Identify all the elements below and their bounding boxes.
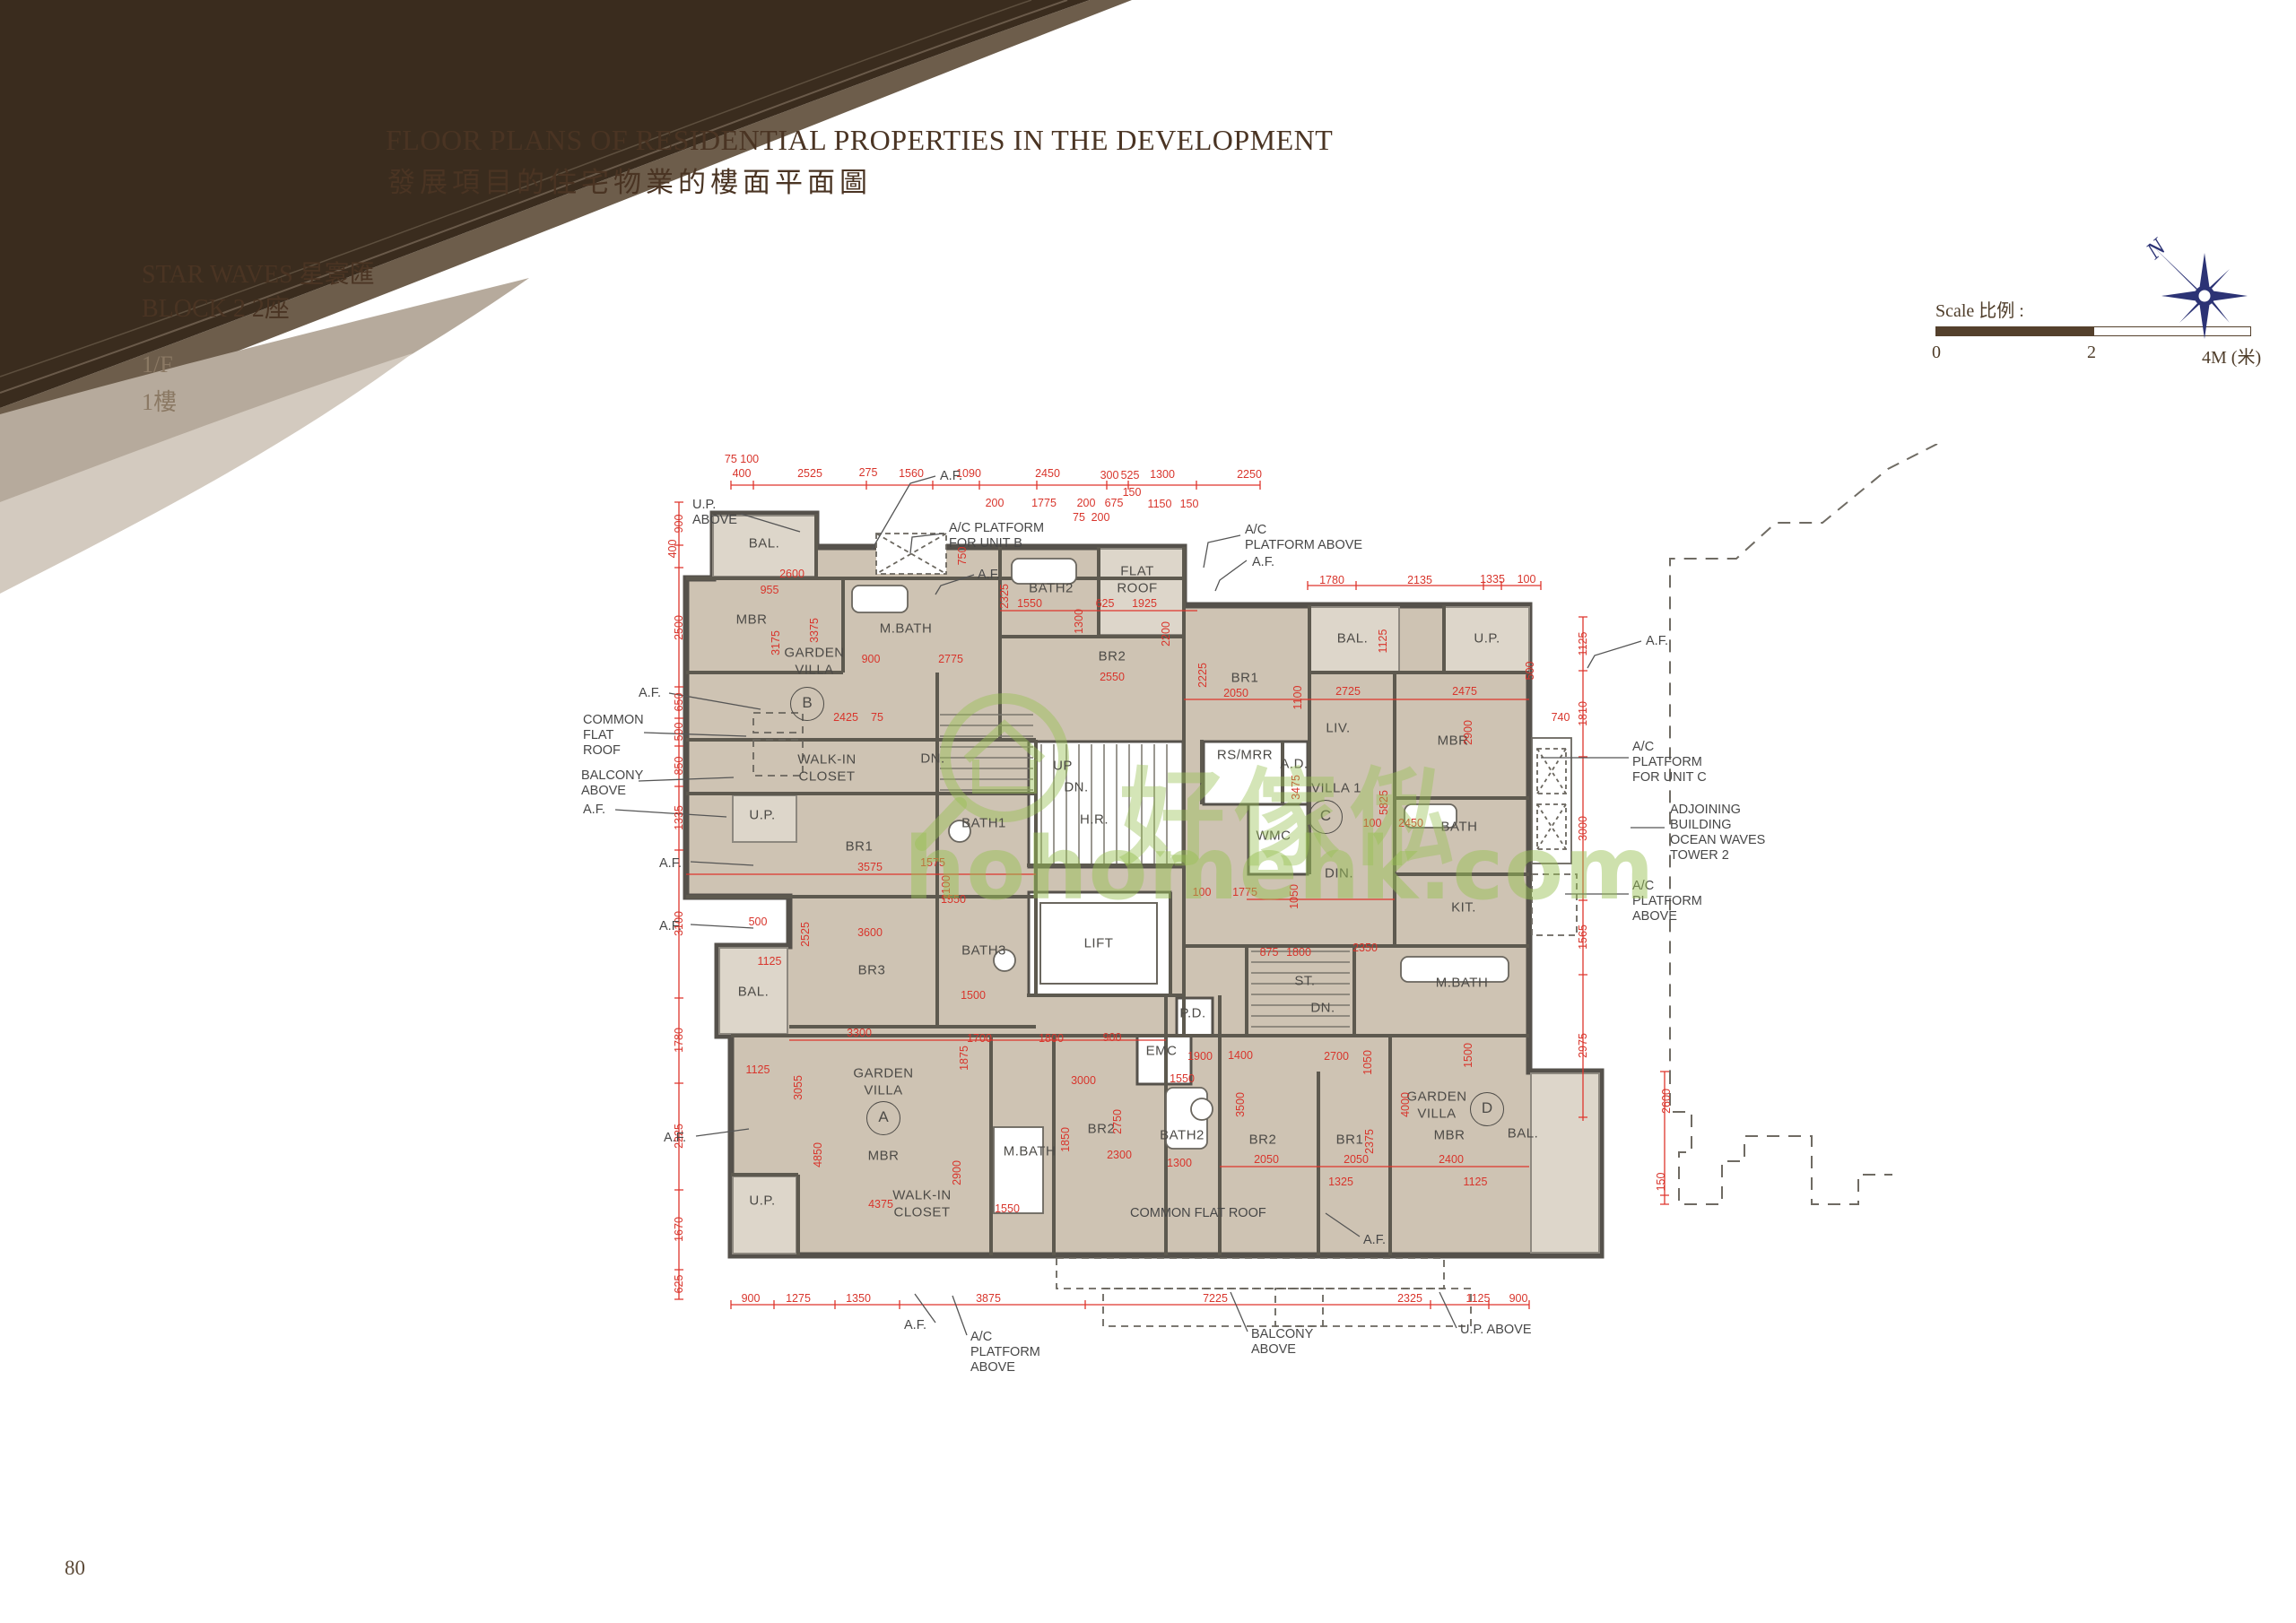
dimension-label: 1400 — [1228, 1049, 1253, 1062]
dimension-label: 200 — [1091, 511, 1110, 524]
room-label: BR1 — [1336, 1133, 1364, 1150]
annotation-callout: BALCONY ABOVE — [581, 768, 643, 799]
room-label: BR1 — [846, 839, 874, 856]
annotation-callout: A.F. — [978, 568, 1000, 583]
dimension-label: 3175 — [770, 630, 782, 655]
plan-labels-layer: BAL.MBRGARDEN VILLAM.BATHBATH2FLAT ROOFB… — [538, 444, 1955, 1408]
dimension-label: 2375 — [1363, 1129, 1376, 1154]
dimension-label: 1125 — [746, 1063, 770, 1076]
dimension-label: 1775 — [1232, 886, 1257, 898]
dimension-label: 500 — [749, 916, 768, 928]
annotation-callout: A.F. — [659, 919, 682, 934]
dimension-label: 675 — [1105, 497, 1124, 509]
annotation-callout: A.F. — [1252, 555, 1274, 570]
dimension-label: 5825 — [1378, 790, 1390, 815]
room-label: U.P. — [1474, 631, 1500, 648]
dimension-label: 2350 — [1352, 942, 1378, 954]
annotation-callout: A.F. — [659, 856, 682, 872]
dimension-label: 3375 — [808, 618, 821, 643]
room-label: BAL. — [1337, 631, 1369, 648]
dimension-label: 2300 — [1107, 1149, 1132, 1161]
dimension-label: 2050 — [1254, 1153, 1279, 1166]
room-label: WMC — [1257, 829, 1291, 846]
dimension-label: 200 — [986, 497, 1004, 509]
dimension-label: 1125 — [1377, 629, 1389, 654]
dimension-label: 1875 — [958, 1046, 970, 1071]
dimension-label: 4000 — [1399, 1092, 1412, 1117]
dimension-label: 2725 — [1335, 685, 1361, 698]
room-label: WALK-IN CLOSET — [797, 751, 856, 785]
room-label: DN. — [1064, 780, 1088, 797]
dimension-label: 400 — [733, 467, 752, 480]
room-label: BATH — [1441, 820, 1478, 837]
room-label: VILLA 1 — [1311, 781, 1361, 798]
annotation-callout: A/C PLATFORM ABOVE — [970, 1330, 1040, 1376]
floor-label-zh: 1樓 — [142, 384, 177, 417]
dimension-label: 650 — [673, 693, 685, 712]
dimension-label: 1050 — [1361, 1050, 1374, 1075]
dimension-label: 2900 — [951, 1160, 963, 1185]
dimension-label: 2325 — [998, 584, 1011, 609]
floor-plan: BAL.MBRGARDEN VILLAM.BATHBATH2FLAT ROOFB… — [538, 444, 1955, 1408]
dimension-label: 2600 — [1660, 1089, 1673, 1114]
dimension-label: 2425 — [833, 711, 858, 724]
room-label: MBR — [736, 612, 768, 629]
dimension-label: 850 — [673, 757, 685, 776]
room-label: BR1 — [1231, 671, 1259, 688]
dimension-label: 3475 — [1290, 775, 1302, 800]
dimension-label: 1125 — [1464, 1176, 1488, 1188]
dimension-label: 2050 — [1223, 687, 1248, 699]
dimension-label: 4375 — [868, 1198, 893, 1211]
room-label: ST. — [1294, 974, 1315, 991]
dimension-label: 1670 — [673, 1217, 685, 1242]
dimension-label: 1550 — [1170, 1072, 1195, 1085]
dimension-label: 3500 — [1234, 1092, 1247, 1117]
room-label: KIT. — [1451, 900, 1476, 917]
unit-circle-label: D — [1470, 1092, 1504, 1126]
dimension-label: 1575 — [920, 856, 945, 869]
annotation-callout: A.F. — [639, 686, 661, 701]
dimension-label: 1100 — [1291, 686, 1304, 710]
dimension-label: 200 — [1077, 497, 1096, 509]
room-label: LIV. — [1326, 721, 1350, 738]
dimension-label: 1700 — [967, 1032, 992, 1045]
dimension-label: 1125 — [758, 955, 782, 968]
annotation-callout: A/C PLATFORM FOR UNIT C — [1632, 740, 1707, 785]
dimension-label: 100 — [1363, 817, 1382, 829]
room-label: H.R. — [1080, 812, 1109, 829]
dimension-label: 4850 — [812, 1142, 824, 1167]
dimension-label: 625 — [673, 1275, 685, 1294]
dimension-label: 1125 — [1466, 1292, 1491, 1305]
annotation-callout: A.F. — [940, 469, 962, 484]
dimension-label: 1050 — [1288, 884, 1300, 909]
annotation-callout: A/C PLATFORM ABOVE — [1245, 523, 1362, 553]
dimension-label: 525 — [1121, 469, 1140, 482]
room-label: BR3 — [858, 963, 886, 980]
room-label: BAL. — [749, 536, 780, 553]
dimension-label: 1150 — [1148, 498, 1172, 510]
dimension-label: 1500 — [961, 989, 986, 1002]
dimension-label: 3875 — [976, 1292, 1001, 1305]
dimension-label: 2325 — [1397, 1292, 1422, 1305]
dimension-label: 150 — [1123, 486, 1142, 499]
annotation-callout: BALCONY ABOVE — [1251, 1327, 1313, 1358]
scale-tick-2: 2 — [2087, 343, 2096, 363]
dimension-label: 2135 — [1407, 574, 1432, 586]
annotation-callout: U.P. ABOVE — [692, 498, 737, 528]
dimension-label: 75 100 — [725, 453, 759, 465]
dimension-label: 2775 — [938, 653, 963, 665]
dimension-label: 1560 — [899, 467, 924, 480]
dimension-label: 3600 — [857, 926, 883, 939]
dimension-label: 1925 — [1132, 597, 1157, 610]
room-label: RS/MRR — [1217, 748, 1273, 765]
dimension-label: 2450 — [1035, 467, 1060, 480]
dimension-label: 1300 — [1073, 609, 1085, 634]
dimension-label: 1780 — [1319, 574, 1344, 586]
room-label: BR2 — [1099, 649, 1126, 666]
room-label: UP — [1053, 759, 1073, 776]
dimension-label: 955 — [761, 584, 779, 596]
unit-circle-label: C — [1309, 800, 1343, 834]
dimension-label: 1550 — [941, 893, 966, 906]
dimension-label: 1550 — [995, 1202, 1020, 1215]
dimension-label: 150 — [1655, 1173, 1667, 1192]
dimension-label: 500 — [1524, 662, 1536, 681]
dimension-label: 3000 — [1071, 1074, 1096, 1087]
scale-tick-0: 0 — [1932, 343, 1941, 363]
dimension-label: 2750 — [1111, 1109, 1124, 1134]
annotation-callout: A/C PLATFORM FOR UNIT B — [949, 521, 1044, 551]
dimension-label: 1335 — [1480, 573, 1505, 586]
dimension-label: 625 — [1096, 597, 1115, 610]
room-label: M.BATH — [1436, 976, 1489, 993]
dimension-label: 2700 — [1324, 1050, 1349, 1063]
room-label: M.BATH — [880, 621, 933, 638]
annotation-callout: U.P. ABOVE — [1460, 1323, 1532, 1338]
room-label: FLAT ROOF — [1117, 563, 1157, 597]
dimension-label: 300 — [1100, 469, 1119, 482]
annotation-callout: A.F. — [583, 803, 605, 818]
page-number: 80 — [65, 1557, 85, 1580]
dimension-label: 2450 — [1398, 817, 1423, 829]
room-label: A.D. — [1280, 757, 1308, 774]
dimension-label: 2050 — [1344, 1153, 1369, 1166]
room-label: BATH1 — [961, 816, 1006, 833]
floor-label-en: 1/F — [142, 352, 173, 378]
annotation-callout: A.F. — [664, 1131, 686, 1146]
unit-circle-label: A — [866, 1101, 900, 1135]
dimension-label: 100 — [1193, 886, 1212, 898]
dimension-label: 590 — [673, 723, 685, 742]
dimension-label: 1300 — [1150, 468, 1175, 481]
dimension-label: 1500 — [1462, 1043, 1474, 1068]
dimension-label: 2225 — [1196, 663, 1209, 688]
dimension-label: 1780 — [673, 1028, 685, 1053]
dimension-label: 1300 — [1167, 1157, 1192, 1169]
page-title-zh: 發展項目的住宅物業的樓面平面圖 — [387, 160, 872, 200]
dimension-label: 900 — [862, 653, 881, 665]
dimension-label: 2475 — [1452, 685, 1477, 698]
dimension-label: 3575 — [857, 861, 883, 873]
annotation-callout: COMMON FLAT ROOF — [1130, 1206, 1266, 1221]
room-label: GARDEN VILLA — [853, 1065, 913, 1099]
dimension-label: 2900 — [1462, 720, 1474, 745]
room-label: WALK-IN CLOSET — [892, 1187, 951, 1221]
dimension-label: 1565 — [1577, 924, 1589, 950]
room-label: EMC — [1146, 1044, 1178, 1061]
room-label: GARDEN VILLA — [784, 645, 844, 679]
dimension-label: 2975 — [1577, 1033, 1589, 1058]
dimension-label: 2525 — [797, 467, 822, 480]
room-label: BATH3 — [961, 943, 1006, 960]
dimension-label: 1335 — [673, 805, 685, 830]
room-label: BR2 — [1249, 1133, 1277, 1150]
dimension-label: 3055 — [792, 1075, 804, 1100]
dimension-label: 900 — [1509, 1292, 1528, 1305]
dimension-label: 1810 — [1577, 701, 1589, 726]
room-label: M.BATH — [1004, 1144, 1057, 1161]
dimension-label: 1800 — [1286, 946, 1311, 959]
dimension-label: 1775 — [1031, 497, 1057, 509]
scale-bar-filled — [1935, 326, 2095, 336]
annotation-callout: A.F. — [904, 1318, 926, 1333]
dimension-label: 900 — [742, 1292, 761, 1305]
dimension-label: 2500 — [673, 615, 685, 640]
dimension-label: 75 — [1073, 511, 1085, 524]
room-label: P.D. — [1179, 1006, 1205, 1023]
dimension-label: 1275 — [786, 1292, 811, 1305]
dimension-label: 2400 — [1439, 1153, 1464, 1166]
dimension-label: 3300 — [847, 1027, 872, 1039]
dimension-label: 1125 — [1577, 632, 1589, 656]
annotation-callout: COMMON FLAT ROOF — [583, 713, 644, 759]
dimension-label: 1800 — [1039, 1032, 1064, 1045]
room-label: DN. — [1310, 1001, 1335, 1018]
room-label: BATH2 — [1029, 581, 1074, 598]
room-label: MBR — [868, 1149, 900, 1166]
room-label: DN. — [920, 751, 944, 768]
room-label: U.P. — [749, 808, 775, 825]
annotation-callout: ADJOINING BUILDING OCEAN WAVES TOWER 2 — [1670, 803, 1765, 864]
dimension-label: 100 — [1518, 573, 1536, 586]
dimension-label: 1850 — [1059, 1127, 1072, 1152]
room-label: DIN. — [1325, 866, 1353, 883]
dimension-label: 3000 — [1577, 816, 1589, 841]
project-name: STAR WAVES 星寰匯 — [142, 255, 375, 291]
dimension-label: 2200 — [1160, 621, 1172, 647]
unit-circle-label: B — [790, 687, 824, 721]
dimension-label: 1550 — [1017, 597, 1042, 610]
dimension-label: 2250 — [1237, 468, 1262, 481]
dimension-label: 75 — [871, 711, 883, 724]
dimension-label: 900 — [673, 515, 685, 534]
dimension-label: 275 — [859, 466, 878, 479]
dimension-label: 900 — [1103, 1031, 1122, 1044]
dimension-label: 2600 — [779, 568, 804, 580]
dimension-label: 875 — [1260, 946, 1279, 959]
annotation-callout: A.F. — [1363, 1233, 1386, 1248]
dimension-label: 400 — [666, 540, 679, 559]
north-compass-icon: N — [2142, 235, 2258, 352]
dimension-label: 1350 — [846, 1292, 871, 1305]
brochure-page: FLOOR PLANS OF RESIDENTIAL PROPERTIES IN… — [0, 0, 2296, 1623]
page-title-en: FLOOR PLANS OF RESIDENTIAL PROPERTIES IN… — [386, 124, 1333, 157]
dimension-label: 7225 — [1203, 1292, 1228, 1305]
room-label: MBR — [1434, 1128, 1465, 1145]
dimension-label: 740 — [1552, 711, 1570, 724]
room-label: BAL. — [1508, 1126, 1539, 1143]
dimension-label: 1325 — [1328, 1176, 1353, 1188]
dimension-label: 150 — [1180, 498, 1199, 510]
room-label: U.P. — [749, 1193, 775, 1211]
room-label: BATH2 — [1160, 1128, 1205, 1145]
dimension-label: 1900 — [1187, 1050, 1213, 1063]
room-label: GARDEN VILLA — [1406, 1089, 1466, 1123]
annotation-callout: A/C PLATFORM ABOVE — [1632, 879, 1702, 924]
dimension-label: 2550 — [1100, 671, 1125, 683]
room-label: BAL. — [738, 985, 770, 1002]
project-block: BLOCK 2 2座 — [142, 289, 290, 325]
annotation-callout: A.F. — [1646, 634, 1668, 649]
scale-label: Scale 比例 : — [1935, 296, 2024, 322]
room-label: LIFT — [1084, 936, 1114, 953]
dimension-label: 2525 — [799, 922, 812, 947]
